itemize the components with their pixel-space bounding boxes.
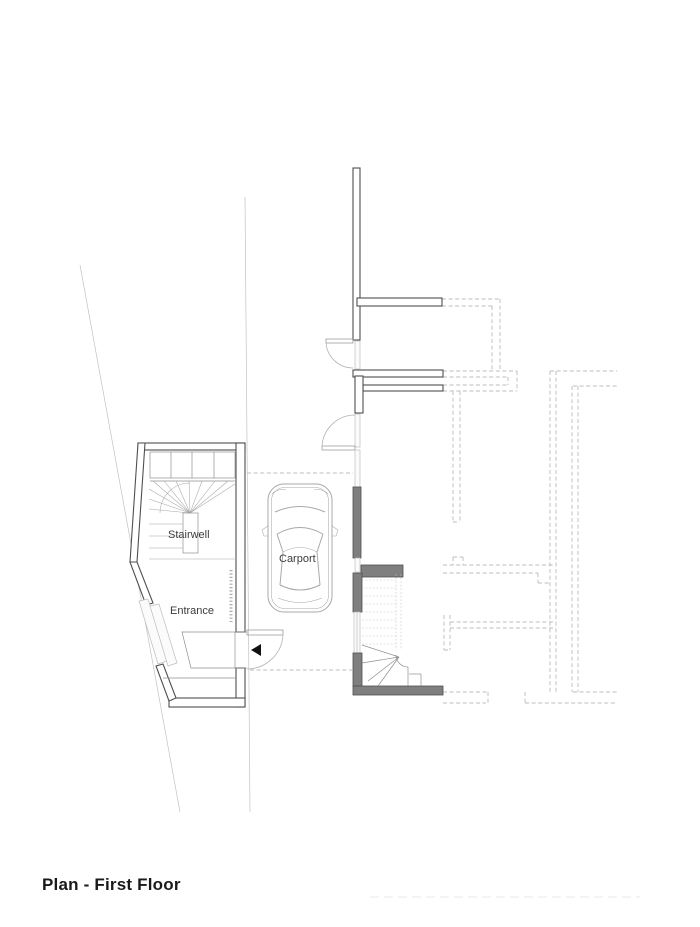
fan-stairs: [149, 481, 235, 513]
carport-label: Carport: [279, 553, 316, 565]
stair-landing: [150, 452, 235, 478]
right-stairwell-group: [362, 574, 421, 686]
left-building-walls: [130, 443, 245, 707]
page-title: Plan - First Floor: [42, 875, 181, 894]
door-leaf: [322, 446, 355, 450]
entrance-label: Entrance: [170, 605, 214, 617]
carport-dashed-edges: [247, 473, 353, 670]
door-leaf: [247, 630, 283, 635]
dashed-neighbor-outline: [442, 299, 617, 703]
carport-group: Carport: [262, 484, 338, 612]
car-icon: [262, 484, 338, 612]
gate-section: [355, 450, 360, 487]
right-building-walls: [322, 168, 443, 695]
entrance-direction-arrow-icon: [251, 644, 261, 656]
side-door-lower-swing: [322, 415, 355, 450]
side-door-upper-swing: [326, 339, 353, 368]
stairwell-group: Stairwell: [149, 452, 236, 559]
entrance-group: Entrance: [163, 570, 283, 678]
door-leaf: [326, 339, 353, 343]
interior-wall-stub: [361, 565, 403, 577]
entry-porch: [182, 632, 235, 668]
floor-plan-page: Stairwell Entrance: [0, 0, 700, 927]
car-mirror-right: [332, 526, 338, 536]
floor-plan-drawing: Stairwell Entrance: [0, 0, 700, 927]
stairwell-label: Stairwell: [168, 529, 210, 541]
car-mirror-left: [262, 526, 268, 536]
